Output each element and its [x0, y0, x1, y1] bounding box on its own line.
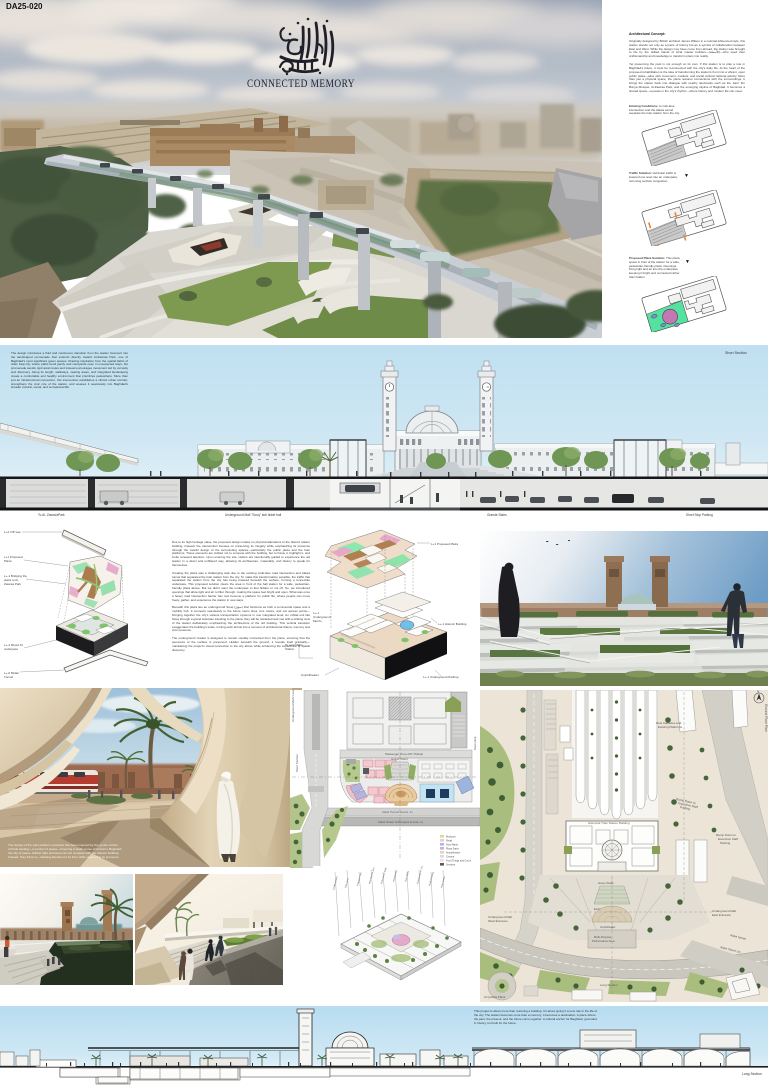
svg-text:N: N — [757, 690, 759, 694]
svg-text:Cinema: Cinema — [446, 856, 455, 859]
svg-text:Historical Train Station Build: Historical Train Station Building — [588, 821, 630, 825]
svg-text:Short Section: Short Section — [725, 351, 747, 355]
svg-text:L+1 Proposed Plaza: L+1 Proposed Plaza — [431, 542, 458, 546]
svg-text:underpass: underpass — [4, 647, 19, 651]
svg-text:Plaza Stairs: Plaza Stairs — [446, 848, 460, 851]
svg-text:East Entrance: East Entrance — [712, 913, 731, 917]
svg-text:Amphitheater: Amphitheater — [301, 673, 319, 677]
svg-text:West Entrance: West Entrance — [488, 919, 508, 923]
svg-text:Plaza: Plaza — [4, 559, 12, 563]
svg-text:L+-1 Historic Building: L+-1 Historic Building — [438, 622, 467, 626]
svg-text:Amphitheater: Amphitheater — [600, 925, 616, 929]
svg-text:Underground Mall "Souq" sub ti: Underground Mall "Souq" sub ticket hall — [225, 513, 281, 517]
svg-text:Long Section: Long Section — [742, 1072, 762, 1076]
svg-text:Parking: Parking — [720, 841, 731, 845]
svg-text:To Al- Zawra'aPark: To Al- Zawra'aPark — [38, 513, 65, 517]
svg-text:Instead, they frame it—drawing: Instead, they frame it—drawing attention… — [8, 855, 120, 859]
svg-text:L+-1 Underground Parking: L+-1 Underground Parking — [423, 675, 459, 679]
svg-text:Mezzo: Mezzo — [313, 619, 322, 623]
svg-text:Retail: Retail — [446, 840, 453, 843]
svg-text:CONNECTED MEMORY: CONNECTED MEMORY — [247, 76, 355, 90]
svg-text:Performance Area: Performance Area — [592, 939, 615, 943]
svg-text:Down ramp: Down ramp — [473, 736, 477, 750]
svg-text:L+4 VIP sap: L+4 VIP sap — [4, 530, 21, 534]
svg-text:Existing Platforms: Existing Platforms — [658, 725, 683, 729]
svg-text:Musicant: Musicant — [446, 836, 456, 839]
svg-text:Short Section: Short Section — [295, 754, 299, 772]
svg-text:Alawi Tunnel (Level -1): Alawi Tunnel (Level -1) — [382, 810, 413, 814]
svg-text:Short Stop Parking: Short Stop Parking — [686, 513, 713, 517]
svg-text:Duty-Wand: Duty-Wand — [446, 844, 459, 847]
svg-text:Ground Floor Plan: Ground Floor Plan — [764, 704, 768, 732]
svg-text:Alawi Street Underpass (Level: Alawi Street Underpass (Level -1) — [378, 820, 423, 824]
svg-text:Grande Stairs: Grande Stairs — [487, 513, 507, 517]
svg-text:Grand Stairs: Grand Stairs — [391, 757, 408, 761]
svg-text:Zawraa Park: Zawraa Park — [4, 582, 22, 586]
svg-text:Underground Mezz Level: Underground Mezz Level — [291, 690, 295, 722]
svg-text:Passenger Drop-Off / Pickup: Passenger Drop-Off / Pickup — [385, 752, 423, 756]
svg-text:Food Things and Count: Food Things and Count — [446, 860, 471, 863]
svg-text:Long Section: Long Section — [600, 983, 618, 987]
svg-text:Amphitheater: Amphitheater — [446, 852, 460, 855]
svg-text:Station: Station — [285, 647, 295, 651]
svg-text:Tunnel: Tunnel — [4, 675, 13, 679]
svg-text:in history, but built for the: in history, but built for the future. — [474, 1021, 517, 1025]
svg-text:Al Qushla Plaza: Al Qushla Plaza — [484, 995, 506, 999]
